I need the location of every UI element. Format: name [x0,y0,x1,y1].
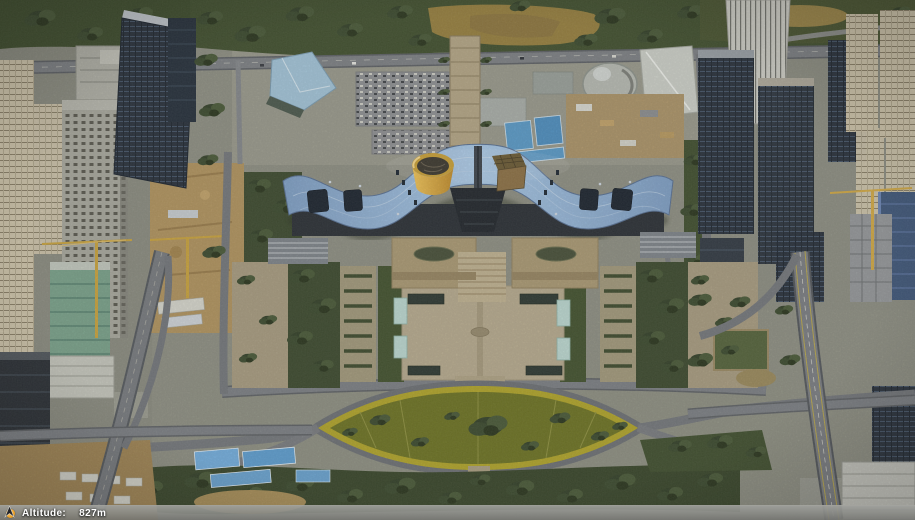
aerial-scene [0,0,915,520]
altitude-label: Altitude: [22,506,66,520]
north-arrow-icon [4,506,15,518]
earth-3d-viewport[interactable]: Altitude: 827m [0,0,915,520]
vignette [0,0,915,520]
status-bar: Altitude: 827m [0,505,915,520]
altitude-value: 827m [79,506,106,520]
